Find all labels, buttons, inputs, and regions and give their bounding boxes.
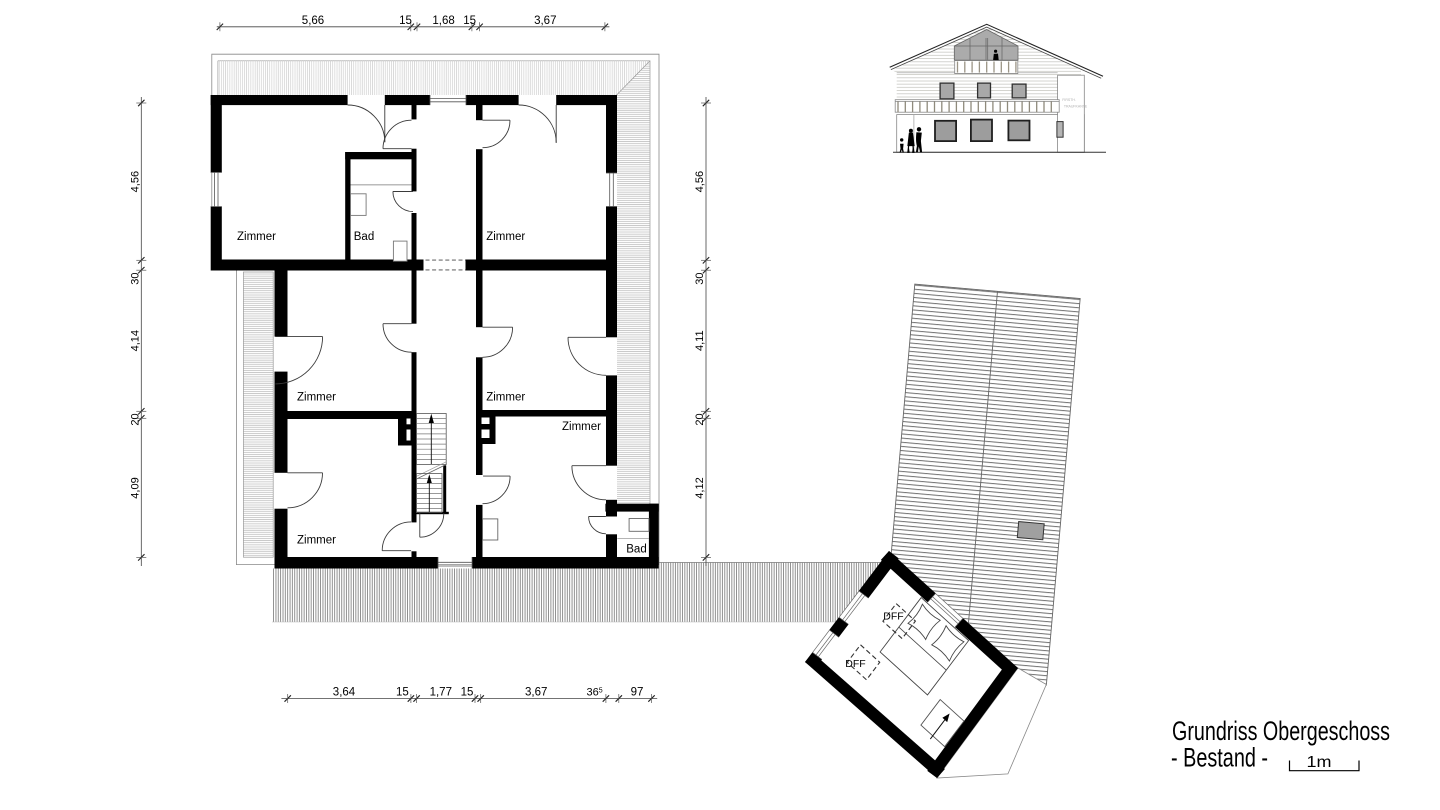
svg-text:FIRSTH.: FIRSTH. bbox=[1062, 98, 1076, 102]
svg-text:1,77: 1,77 bbox=[430, 687, 452, 699]
svg-text:4,56: 4,56 bbox=[129, 171, 141, 192]
svg-text:30: 30 bbox=[129, 272, 141, 284]
svg-text:5,66: 5,66 bbox=[302, 15, 324, 27]
svg-text:15: 15 bbox=[396, 687, 409, 699]
svg-text:97: 97 bbox=[631, 687, 644, 699]
svg-text:Grundriss Obergeschoss: Grundriss Obergeschoss bbox=[1172, 716, 1390, 746]
svg-text:Zimmer: Zimmer bbox=[486, 231, 525, 243]
svg-text:DFF: DFF bbox=[883, 611, 903, 623]
svg-text:Zimmer: Zimmer bbox=[297, 534, 336, 546]
svg-text:DFF: DFF bbox=[845, 658, 865, 670]
svg-text:3,64: 3,64 bbox=[333, 687, 356, 699]
svg-text:15: 15 bbox=[399, 15, 412, 27]
svg-text:Zimmer: Zimmer bbox=[486, 391, 525, 403]
svg-text:Zimmer: Zimmer bbox=[297, 391, 336, 403]
svg-text:4,14: 4,14 bbox=[129, 330, 141, 351]
svg-text:3,67: 3,67 bbox=[534, 15, 556, 27]
svg-text:- Bestand -: - Bestand - bbox=[1171, 743, 1268, 773]
svg-text:30: 30 bbox=[694, 272, 706, 284]
svg-text:20: 20 bbox=[129, 413, 141, 425]
svg-text:4,12: 4,12 bbox=[694, 477, 706, 498]
svg-text:15: 15 bbox=[463, 15, 476, 27]
svg-text:15: 15 bbox=[461, 687, 474, 699]
svg-text:TRAUFKANTE: TRAUFKANTE bbox=[1064, 105, 1088, 109]
svg-text:20: 20 bbox=[694, 413, 706, 425]
svg-text:4,09: 4,09 bbox=[129, 477, 141, 498]
svg-text:4,11: 4,11 bbox=[694, 330, 706, 351]
svg-text:Zimmer: Zimmer bbox=[562, 421, 601, 433]
svg-text:1,68: 1,68 bbox=[432, 15, 454, 27]
svg-text:Bad: Bad bbox=[626, 543, 646, 555]
svg-text:1m: 1m bbox=[1307, 754, 1332, 771]
svg-text:Zimmer: Zimmer bbox=[237, 231, 276, 243]
svg-text:4,56: 4,56 bbox=[694, 171, 706, 192]
svg-text:Bad: Bad bbox=[354, 231, 374, 243]
svg-text:3,67: 3,67 bbox=[525, 687, 547, 699]
